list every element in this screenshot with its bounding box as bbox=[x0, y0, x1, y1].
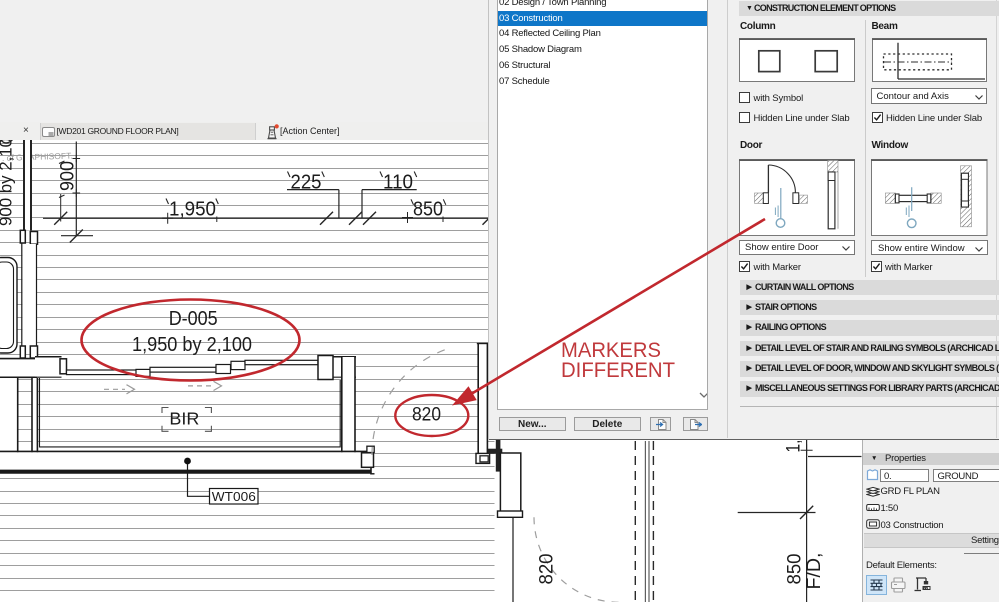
svg-text:F/D,: F/D, bbox=[803, 553, 825, 590]
svg-text:820: 820 bbox=[536, 553, 558, 584]
svg-text:WT006: WT006 bbox=[212, 489, 256, 504]
svg-text:820: 820 bbox=[412, 405, 441, 426]
svg-text:1,950: 1,950 bbox=[169, 198, 216, 221]
svg-text:D-005: D-005 bbox=[169, 307, 218, 330]
svg-text:1,: 1, bbox=[783, 440, 805, 453]
svg-text:1,950 by 2,100: 1,950 by 2,100 bbox=[132, 333, 252, 356]
svg-text:110: 110 bbox=[383, 172, 413, 194]
svg-text:850: 850 bbox=[413, 198, 443, 221]
svg-text:900: 900 bbox=[57, 161, 79, 191]
svg-text:900 by 2,10: 900 by 2,10 bbox=[0, 138, 16, 226]
svg-text:BIR: BIR bbox=[169, 409, 199, 429]
svg-text:225: 225 bbox=[291, 172, 322, 194]
